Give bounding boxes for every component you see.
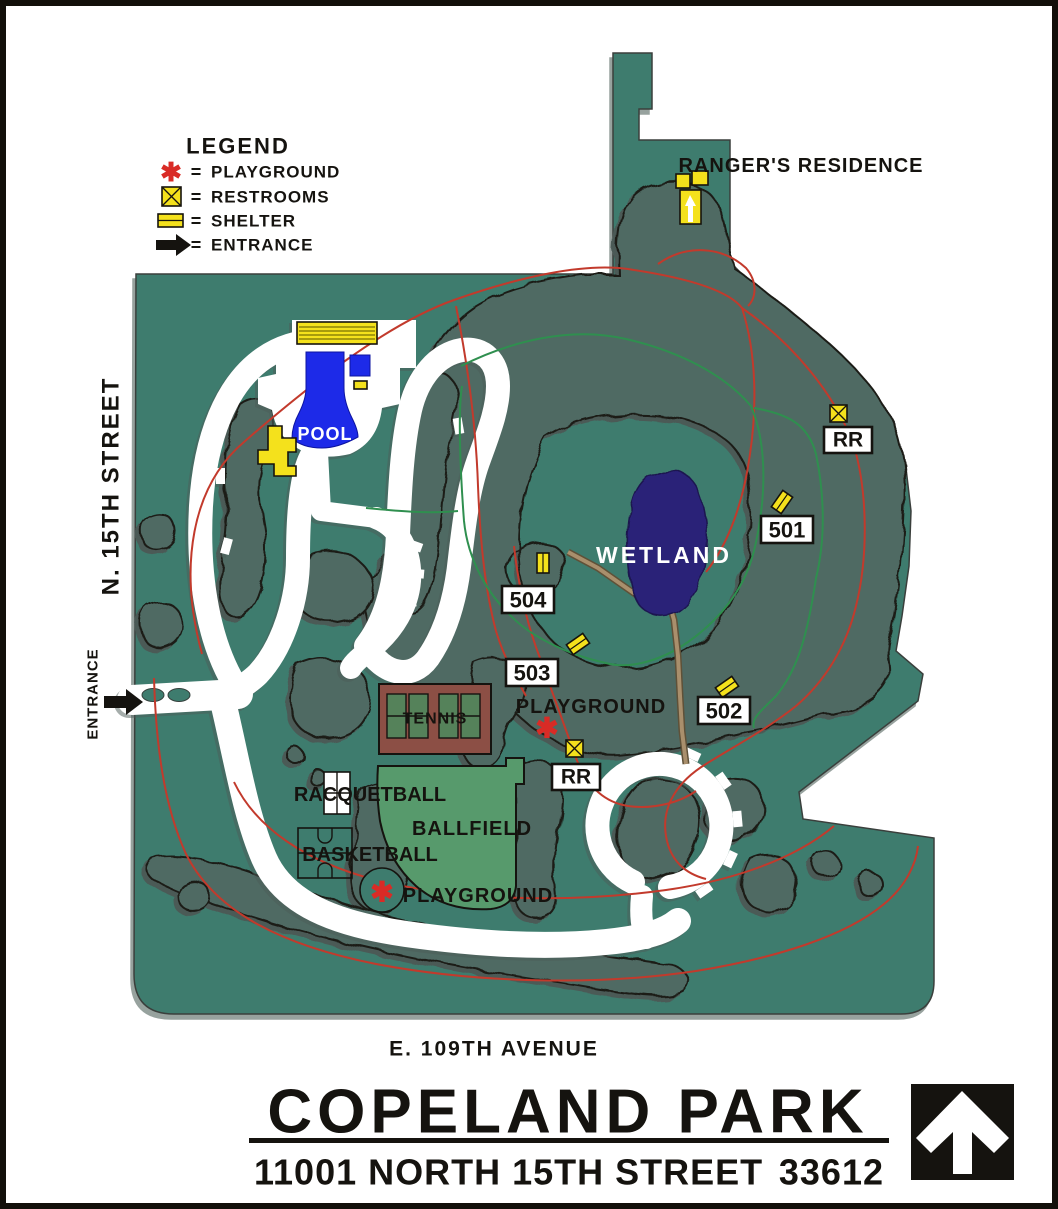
legend-item-shelter: SHELTER bbox=[211, 212, 296, 231]
road-culdesac-stem bbox=[641, 896, 646, 938]
legend-eq-1: = bbox=[191, 162, 202, 182]
label-502: 502 bbox=[706, 699, 743, 724]
legend-item-restrooms: RESTROOMS bbox=[211, 188, 330, 207]
playground-upper-label: PLAYGROUND bbox=[516, 696, 666, 718]
shelter-icon bbox=[158, 214, 183, 227]
legend-eq-3: = bbox=[191, 211, 202, 231]
title-underline bbox=[249, 1138, 889, 1143]
legend: LEGEND ✱ = PLAYGROUND = RESTROOMS = SHEL… bbox=[156, 134, 340, 257]
playground-lower-label: PLAYGROUND bbox=[403, 885, 553, 907]
restrooms-icon bbox=[162, 187, 181, 206]
park-map-svg: 501 502 503 504 RR RR RANGER'S RESIDENCE… bbox=[6, 6, 1058, 1209]
forest-entrance-blob-1 bbox=[141, 515, 175, 550]
title-block: COPELAND PARK 11001 NORTH 15TH STREET 33… bbox=[249, 1078, 1014, 1193]
park-map-page: 501 502 503 504 RR RR RANGER'S RESIDENCE… bbox=[0, 0, 1058, 1209]
ranger-residence-label: RANGER'S RESIDENCE bbox=[678, 155, 923, 177]
park-zip: 33612 bbox=[779, 1152, 884, 1193]
legend-eq-2: = bbox=[191, 187, 202, 207]
label-rr-lower: RR bbox=[561, 766, 591, 789]
entrance-arrow-icon bbox=[156, 234, 191, 256]
pool-small-structure bbox=[354, 381, 367, 389]
entrance-median-island-2 bbox=[168, 689, 190, 702]
north-arrow bbox=[911, 1084, 1014, 1180]
e109th-avenue-label: E. 109TH AVENUE bbox=[389, 1038, 599, 1061]
label-503: 503 bbox=[514, 661, 551, 686]
park-address: 11001 NORTH 15TH STREET bbox=[254, 1152, 763, 1193]
label-504: 504 bbox=[510, 588, 547, 613]
pool-kiddie bbox=[350, 355, 370, 376]
basketball-label: BASKETBALL bbox=[302, 844, 438, 866]
entrance-median-island-1 bbox=[142, 689, 164, 702]
label-rr-upper: RR bbox=[833, 429, 863, 452]
label-501: 501 bbox=[769, 518, 806, 543]
playground-lower-asterisk-icon: ✱ bbox=[370, 877, 393, 908]
legend-item-playground: PLAYGROUND bbox=[211, 163, 340, 182]
forest-entrance-blob-2 bbox=[140, 603, 183, 649]
pool-label: POOL bbox=[297, 424, 352, 444]
racquetball-label: RACQUETBALL bbox=[294, 784, 446, 806]
forest-small-tree-2 bbox=[858, 872, 882, 896]
legend-title: LEGEND bbox=[186, 134, 290, 159]
restrooms-icon-lower bbox=[566, 740, 583, 757]
pool-bleachers bbox=[297, 322, 377, 344]
legend-item-entrance: ENTRANCE bbox=[211, 236, 313, 255]
forest-small-tree-1 bbox=[813, 851, 839, 877]
forest-small-tree-3 bbox=[287, 747, 303, 763]
tennis-label: TENNIS bbox=[403, 711, 468, 728]
playground-asterisk-icon: ✱ bbox=[160, 157, 182, 187]
wetland-label: WETLAND bbox=[596, 542, 732, 568]
legend-eq-4: = bbox=[191, 235, 202, 255]
park-title: COPELAND PARK bbox=[267, 1078, 868, 1147]
entrance-street-label: ENTRANCE bbox=[85, 648, 102, 739]
forest-bottomleft-blob bbox=[178, 881, 209, 911]
n15th-street-label: N. 15TH STREET bbox=[98, 377, 125, 596]
ballfield-label: BALLFIELD bbox=[412, 818, 532, 840]
shelter-icon-504 bbox=[537, 553, 549, 573]
restrooms-icon-upper bbox=[830, 405, 847, 422]
